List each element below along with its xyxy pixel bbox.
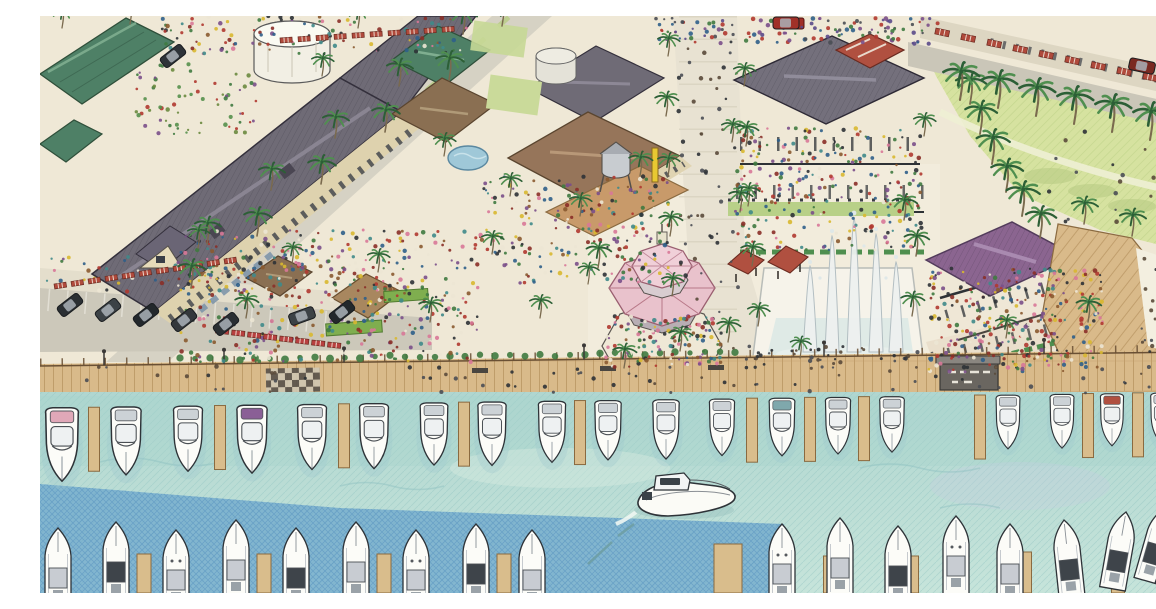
stern-gear <box>642 492 652 500</box>
shrub <box>581 351 588 358</box>
water-sheen <box>930 462 1110 510</box>
shrub <box>417 354 423 360</box>
shrub <box>491 352 498 359</box>
awning <box>316 35 328 41</box>
shrub <box>687 350 692 355</box>
docked-boat <box>416 402 451 472</box>
docked-boat <box>1097 393 1126 452</box>
palm-shadow <box>1024 168 1076 184</box>
cabin-windows <box>660 478 680 485</box>
docked-boat <box>876 396 907 459</box>
docked-boat <box>766 398 799 463</box>
finger-dock <box>747 398 758 462</box>
docked-boat <box>233 405 271 482</box>
yellow-banner <box>652 148 658 182</box>
shrub <box>281 355 289 363</box>
finger-dock <box>339 404 350 468</box>
finger-dock <box>459 402 470 466</box>
shrub <box>176 354 183 361</box>
shrub <box>507 352 513 358</box>
awning <box>388 30 400 36</box>
awning <box>370 31 382 37</box>
docked-boat <box>706 399 738 463</box>
car <box>773 17 799 29</box>
finger-dock <box>257 554 271 593</box>
finger-dock <box>377 554 391 593</box>
shrub <box>386 352 393 359</box>
docked-boat <box>474 402 510 474</box>
shrub <box>326 355 334 363</box>
shrub <box>567 352 573 358</box>
finger-dock <box>805 397 816 461</box>
docked-boat <box>822 397 854 461</box>
shrub <box>522 353 529 360</box>
docked-boat <box>591 400 625 467</box>
awning <box>298 36 310 42</box>
awning <box>247 332 260 338</box>
docked-boat <box>41 407 83 490</box>
docked-boat <box>107 406 145 483</box>
awning <box>327 342 340 348</box>
shrub <box>432 354 438 360</box>
finger-dock <box>215 406 226 470</box>
shrub <box>552 353 558 359</box>
shrub <box>311 354 318 361</box>
finger-dock <box>137 554 151 593</box>
palm-shadow <box>1068 184 1116 198</box>
courtyard-green <box>486 75 542 116</box>
shrub <box>596 350 603 357</box>
awning <box>442 26 454 32</box>
finger-dock <box>859 397 870 461</box>
marina-village-rendering: Aerial colored-pencil rendering of a wat… <box>40 16 1156 593</box>
awning <box>279 336 292 342</box>
finger-dock <box>714 544 742 593</box>
shrub <box>206 354 213 361</box>
shrub <box>356 354 364 362</box>
shrub <box>402 354 408 360</box>
docked-boat <box>1047 394 1077 455</box>
finger-dock <box>1083 394 1094 458</box>
awning <box>295 338 308 344</box>
shrub <box>536 351 543 358</box>
bench <box>472 368 488 373</box>
awning <box>280 37 292 43</box>
finger-dock <box>1133 393 1144 457</box>
shrub <box>342 355 348 361</box>
awning <box>352 32 364 38</box>
docked-boat <box>535 401 570 470</box>
dock-gate <box>936 356 1000 390</box>
pond <box>448 146 488 170</box>
awning <box>311 340 324 346</box>
finger-dock <box>497 554 511 593</box>
docked-boat <box>356 403 393 477</box>
bench <box>708 365 724 370</box>
illustration-canvas <box>40 16 1156 593</box>
awning <box>334 34 346 40</box>
shrub <box>731 349 738 356</box>
docked-boat <box>649 399 683 466</box>
docked-boat <box>170 406 207 480</box>
rotunda <box>254 21 330 83</box>
awning <box>424 28 436 34</box>
shrub <box>717 349 723 355</box>
awning <box>231 330 244 336</box>
docked-boat <box>294 404 331 478</box>
finger-dock <box>89 407 100 471</box>
gable-window <box>156 256 165 263</box>
awning <box>406 29 418 35</box>
docked-boat <box>993 395 1023 456</box>
finger-dock <box>975 395 986 459</box>
shrub <box>477 352 483 358</box>
awning <box>263 334 276 340</box>
checker-plaza <box>266 368 320 393</box>
finger-dock <box>575 401 586 465</box>
